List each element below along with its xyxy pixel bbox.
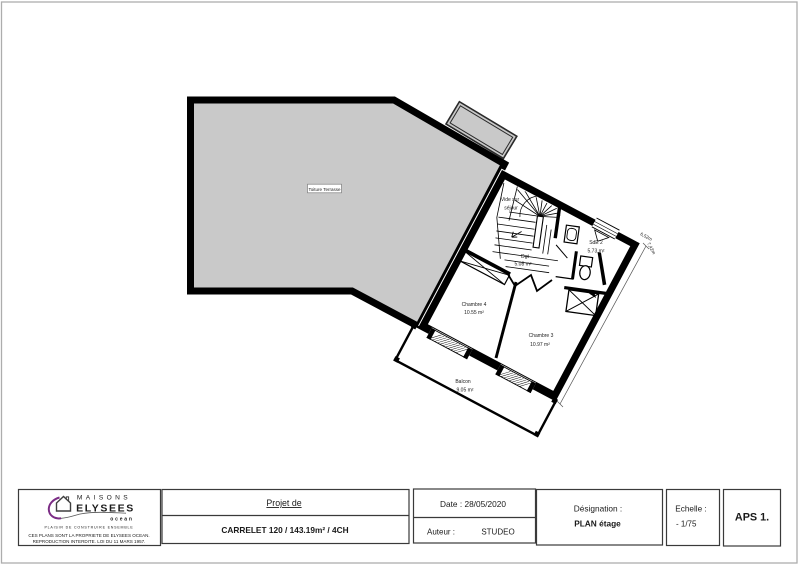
svg-text:Projet de: Projet de bbox=[266, 498, 301, 508]
svg-text:Désignation :: Désignation : bbox=[574, 504, 622, 514]
svg-text:Echelle :: Echelle : bbox=[675, 505, 706, 514]
svg-text:CES PLANS SONT LA PROPRIETE DE: CES PLANS SONT LA PROPRIETE DE ELYSEES O… bbox=[28, 533, 149, 538]
svg-text:9.05 m²: 9.05 m² bbox=[457, 388, 474, 394]
svg-text:Vide sur: Vide sur bbox=[501, 197, 520, 203]
svg-text:CARRELET 120 / 143.19m² / 4CH: CARRELET 120 / 143.19m² / 4CH bbox=[221, 525, 348, 535]
svg-text:Date : 28/05/2020: Date : 28/05/2020 bbox=[440, 499, 506, 509]
svg-text:- 1/75: - 1/75 bbox=[676, 520, 697, 529]
svg-text:Chambre 4: Chambre 4 bbox=[462, 302, 487, 308]
svg-text:STUDEO: STUDEO bbox=[481, 528, 514, 537]
svg-text:SdE 2: SdE 2 bbox=[589, 240, 603, 246]
svg-text:5.08 m²: 5.08 m² bbox=[515, 262, 532, 268]
svg-text:PLAN étage: PLAN étage bbox=[574, 519, 621, 529]
svg-text:10.55 m²: 10.55 m² bbox=[464, 310, 484, 316]
svg-text:Auteur :: Auteur : bbox=[427, 528, 455, 537]
svg-text:Dgt: Dgt bbox=[521, 254, 529, 260]
svg-text:séjour: séjour bbox=[504, 206, 518, 212]
svg-text:MAISONS: MAISONS bbox=[77, 495, 131, 502]
svg-text:Toiture Terrasse: Toiture Terrasse bbox=[309, 187, 341, 192]
svg-text:Chambre 3: Chambre 3 bbox=[529, 333, 554, 339]
svg-text:5.73 m²: 5.73 m² bbox=[588, 249, 605, 255]
svg-text:REPRODUCTION INTERDITE. LOI DU: REPRODUCTION INTERDITE. LOI DU 11 MARS 1… bbox=[33, 539, 146, 544]
svg-text:APS 1.: APS 1. bbox=[735, 512, 769, 524]
svg-text:ocean: ocean bbox=[110, 517, 133, 523]
svg-text:ELYSEES: ELYSEES bbox=[76, 503, 135, 515]
svg-text:Balcon: Balcon bbox=[455, 379, 471, 385]
svg-text:10.97 m²: 10.97 m² bbox=[530, 342, 550, 348]
svg-text:PLAISIR DE CONSTRUIRE ENSEMBLE: PLAISIR DE CONSTRUIRE ENSEMBLE bbox=[44, 525, 133, 529]
